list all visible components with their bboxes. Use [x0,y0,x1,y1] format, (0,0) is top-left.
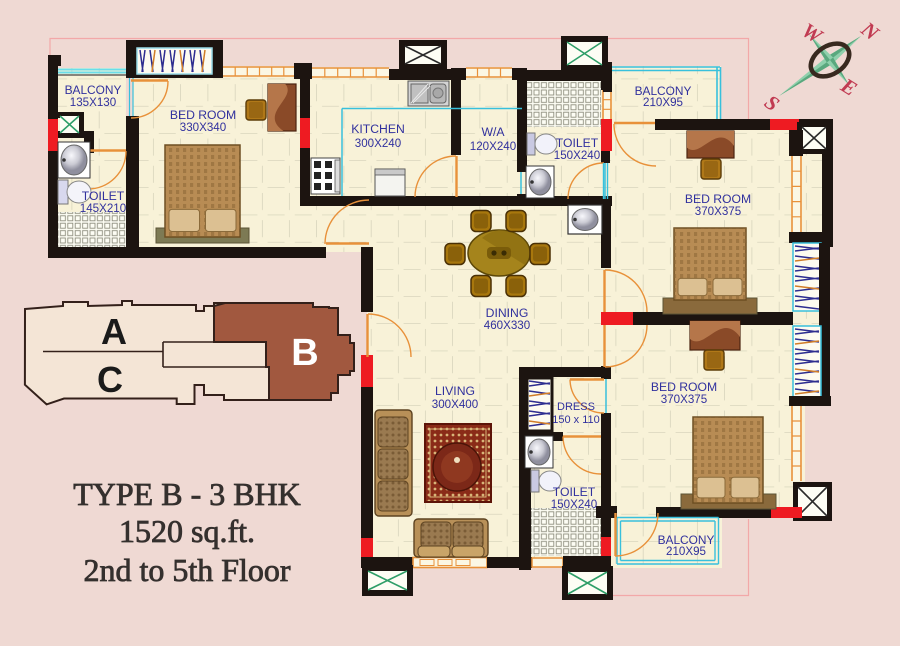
svg-text:KITCHEN: KITCHEN [351,122,405,136]
svg-text:LIVING: LIVING [435,384,475,398]
svg-text:B: B [291,332,318,374]
svg-text:DRESS: DRESS [557,401,595,413]
svg-text:2nd to 5th Floor: 2nd to 5th Floor [83,552,290,588]
svg-text:370X375: 370X375 [695,205,741,218]
svg-text:DINING: DINING [486,306,529,320]
svg-text:120X240: 120X240 [470,140,516,153]
svg-text:1520 sq.ft.: 1520 sq.ft. [119,513,255,549]
svg-text:BED ROOM: BED ROOM [651,380,717,394]
svg-text:TOILET: TOILET [553,485,596,499]
svg-text:150X240: 150X240 [551,498,597,511]
svg-text:300X240: 300X240 [355,137,401,150]
svg-text:TYPE B - 3 BHK: TYPE B - 3 BHK [73,476,301,512]
svg-text:A: A [101,311,127,352]
svg-text:210X95: 210X95 [666,545,706,558]
svg-text:300X400: 300X400 [432,398,478,411]
svg-text:145X210: 145X210 [80,202,126,215]
svg-text:BED ROOM: BED ROOM [170,108,236,122]
svg-text:W/A: W/A [481,125,505,139]
svg-text:TOILET: TOILET [556,136,599,150]
svg-text:135X130: 135X130 [70,96,116,109]
svg-text:330X340: 330X340 [180,121,226,134]
svg-text:370X375: 370X375 [661,393,707,406]
svg-text:BED ROOM: BED ROOM [685,192,751,206]
svg-text:150 x 110: 150 x 110 [552,414,600,426]
svg-text:C: C [97,359,123,400]
svg-text:BALCONY: BALCONY [65,83,122,97]
svg-text:460X330: 460X330 [484,319,530,332]
svg-text:150X240: 150X240 [554,149,600,162]
svg-text:TOILET: TOILET [82,189,125,203]
svg-text:210X95: 210X95 [643,96,683,109]
